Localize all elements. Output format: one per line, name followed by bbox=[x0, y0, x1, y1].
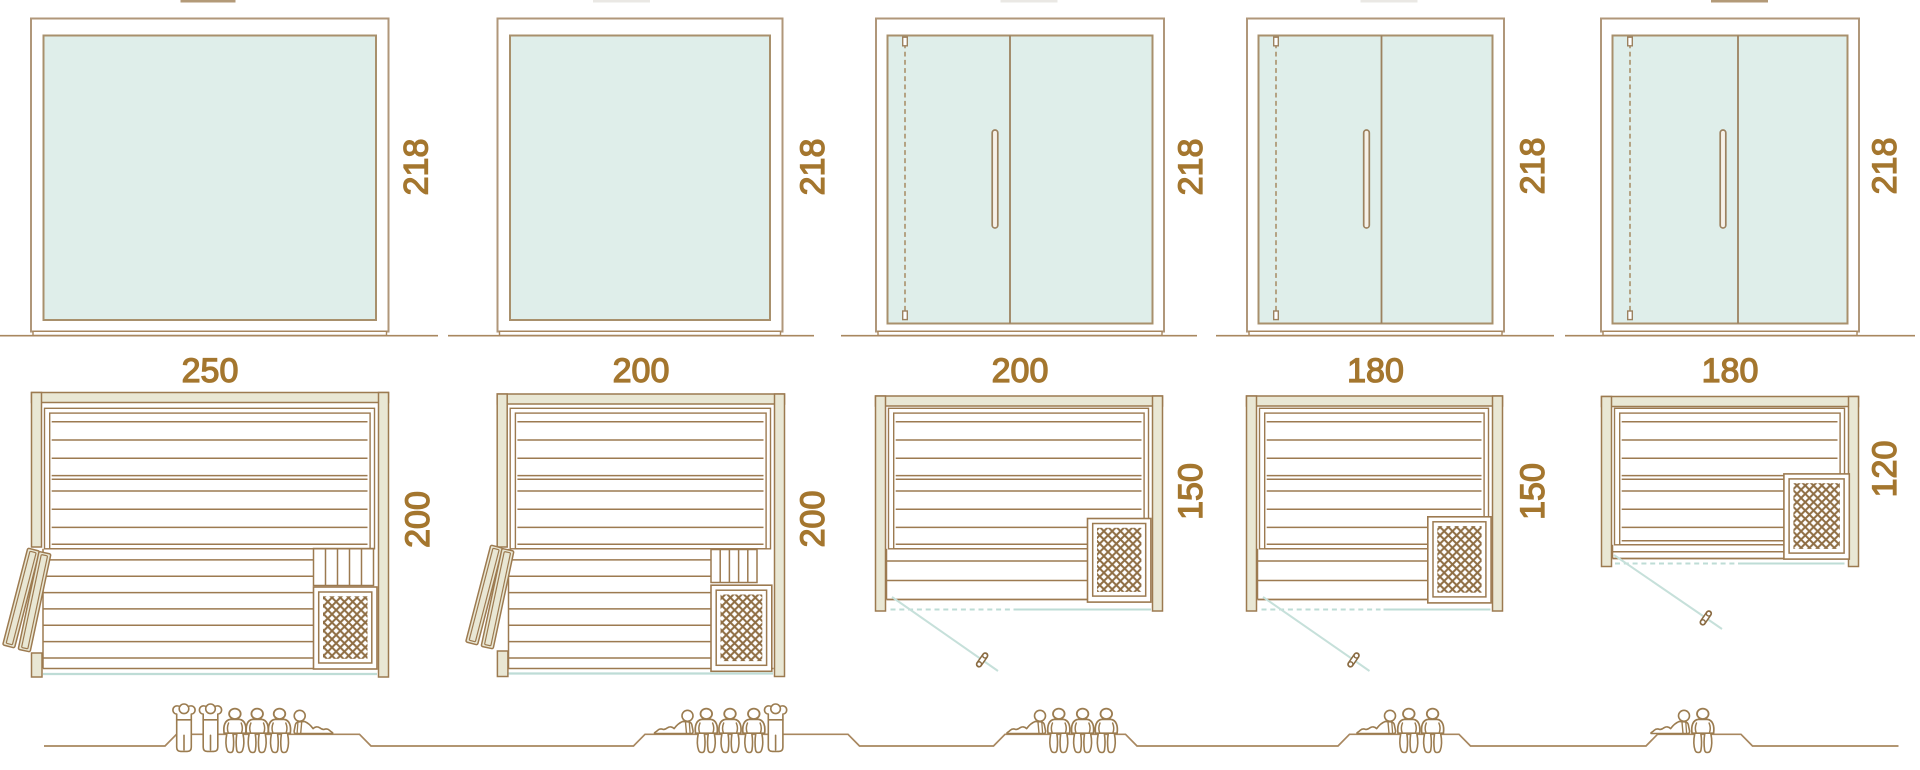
svg-text:150: 150 bbox=[1514, 463, 1552, 520]
svg-text:218: 218 bbox=[1866, 138, 1904, 195]
svg-text:218: 218 bbox=[397, 139, 435, 196]
svg-text:200: 200 bbox=[992, 352, 1049, 390]
svg-text:218: 218 bbox=[1172, 139, 1210, 196]
svg-text:250: 250 bbox=[182, 352, 239, 390]
svg-text:200: 200 bbox=[613, 352, 670, 390]
svg-text:200: 200 bbox=[399, 491, 437, 548]
svg-text:218: 218 bbox=[794, 139, 832, 196]
svg-text:120: 120 bbox=[1866, 441, 1904, 498]
svg-text:180: 180 bbox=[1702, 352, 1759, 390]
svg-text:150: 150 bbox=[1172, 463, 1210, 520]
svg-text:200: 200 bbox=[794, 491, 832, 548]
svg-text:218: 218 bbox=[1514, 138, 1552, 195]
svg-text:180: 180 bbox=[1347, 352, 1404, 390]
